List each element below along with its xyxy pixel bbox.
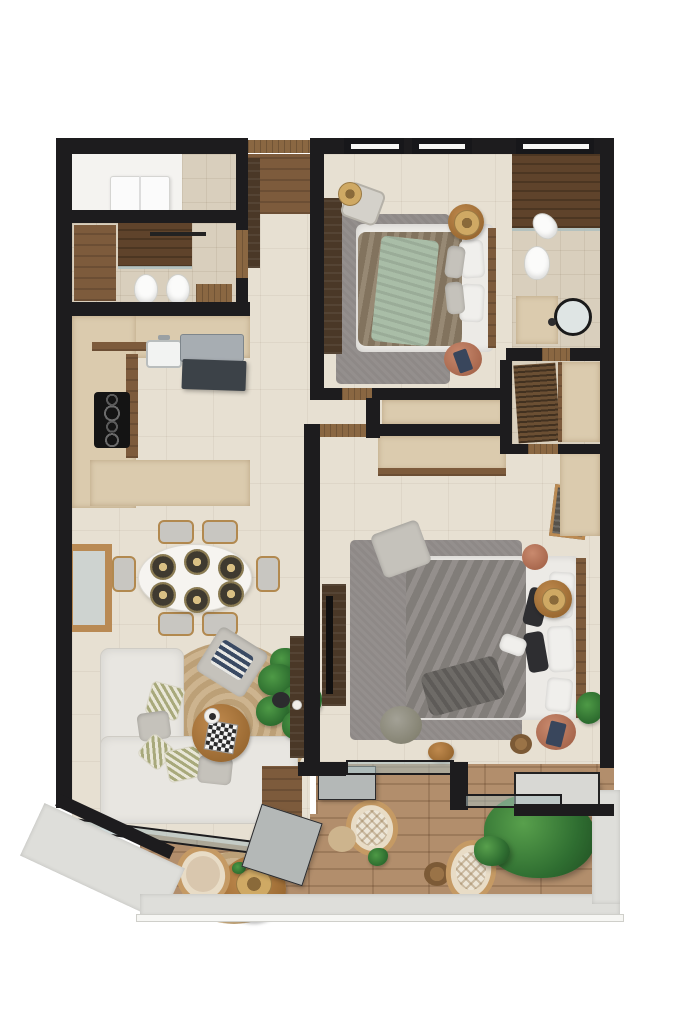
bath1-bidet xyxy=(166,274,190,304)
laundry-tiles xyxy=(182,154,240,212)
balcony-pouf xyxy=(328,826,356,852)
closet-door-threshold xyxy=(528,444,558,454)
bath1-shower-floor xyxy=(118,223,192,267)
closet-wardrobe xyxy=(562,362,600,442)
hall-wardrobe-b xyxy=(378,436,506,470)
sliding-door-master xyxy=(346,760,454,775)
dining-chair xyxy=(158,612,194,636)
bath2-faucet xyxy=(548,318,556,326)
chair-cushion xyxy=(356,810,388,846)
kitchen-sink xyxy=(146,340,182,368)
wall-laundry-divider xyxy=(72,210,248,223)
entry-door xyxy=(248,140,310,153)
master-ottoman xyxy=(380,706,422,744)
wall-bed1-bottom-a xyxy=(324,388,342,400)
railing-outer-lip xyxy=(136,914,624,922)
kitchen-cooktop xyxy=(94,392,130,448)
wall-platform-edge xyxy=(514,804,614,816)
chair-cushion xyxy=(186,856,220,892)
washer-seam xyxy=(139,176,141,212)
master-tv-screen xyxy=(326,596,333,694)
straw-hat xyxy=(338,182,362,206)
straw-hat xyxy=(542,588,566,612)
master-door-threshold xyxy=(318,424,366,437)
place-setting xyxy=(150,554,176,580)
wall-master-bottom-a xyxy=(298,762,346,776)
closet-louver-unit xyxy=(513,363,560,444)
place-setting xyxy=(184,587,210,613)
straw-hat xyxy=(454,210,480,236)
master-side-table xyxy=(428,742,454,762)
bath2-round-mirror xyxy=(554,298,592,336)
floor-plan xyxy=(0,0,683,1024)
hall-wardrobe-a xyxy=(382,400,504,424)
dining-chair xyxy=(202,520,238,544)
bed1-headboard xyxy=(488,228,496,348)
bath1-mirror-strip xyxy=(150,232,206,236)
wall-hall-divider xyxy=(304,424,320,776)
wall-entry-vert-a xyxy=(236,154,248,230)
wall-entry-vert-b xyxy=(236,278,248,314)
bath2-door-threshold xyxy=(542,348,570,361)
wall-top-1 xyxy=(56,138,248,154)
wall-kitchen-top xyxy=(56,302,250,316)
balcony-bush xyxy=(474,836,510,866)
wall-left xyxy=(56,138,72,808)
bath1-door-threshold xyxy=(236,230,248,278)
master-pillow-white xyxy=(547,625,575,672)
kitchen-wood-edge-top xyxy=(92,342,152,351)
living-tv-console xyxy=(290,636,304,758)
kitchen-faucet xyxy=(158,335,170,340)
wall-closet-mid xyxy=(366,424,512,436)
entry-cabinet xyxy=(248,158,260,268)
place-setting xyxy=(184,549,210,575)
monstera-pot xyxy=(272,692,290,708)
dining-chair xyxy=(158,520,194,544)
bath2-shower-floor xyxy=(512,154,600,228)
floor-lamp xyxy=(292,700,302,710)
master-stump-table xyxy=(510,734,532,754)
bath1-toilet xyxy=(134,274,158,304)
bed1-window xyxy=(412,138,472,154)
dining-driftwood-mirror xyxy=(66,544,112,632)
coffee-cup-dot xyxy=(209,713,216,720)
bath1-wood-mat xyxy=(196,284,232,304)
bed1-sage-throw xyxy=(371,235,440,346)
bath2-toilet xyxy=(524,246,550,280)
wall-bed1-bottom-b xyxy=(372,388,506,400)
master-pillow-white xyxy=(544,677,573,714)
bath1-vanity xyxy=(74,225,116,301)
wall-closet-bottom-b xyxy=(558,444,614,454)
fridge-front xyxy=(181,359,246,391)
kitchen-peninsula xyxy=(90,460,250,506)
checkers-board xyxy=(204,720,239,755)
wall-bath2-bottom-b xyxy=(570,348,614,361)
bed1-wardrobe xyxy=(324,198,342,354)
hall-wardrobe-shelf xyxy=(378,468,506,476)
place-setting xyxy=(218,581,244,607)
master-console-ledge xyxy=(560,452,600,536)
wall-bed1-left xyxy=(310,154,324,400)
bed1-window xyxy=(344,138,406,154)
fridge-top xyxy=(180,334,244,362)
wall-top-2 xyxy=(310,138,344,154)
bath1-shower-glass xyxy=(118,266,192,269)
wall-closet-left xyxy=(500,360,512,452)
place-setting xyxy=(218,555,244,581)
bath2-window xyxy=(516,138,596,154)
railing-bottom xyxy=(140,894,620,916)
nightstand-copper xyxy=(522,544,548,570)
bed1-pillow-grey xyxy=(444,281,465,315)
wall-top-3 xyxy=(472,138,516,154)
place-setting xyxy=(150,582,176,608)
dining-chair xyxy=(112,556,136,592)
dining-chair xyxy=(256,556,280,592)
wall-closet-bottom-a xyxy=(500,444,528,454)
